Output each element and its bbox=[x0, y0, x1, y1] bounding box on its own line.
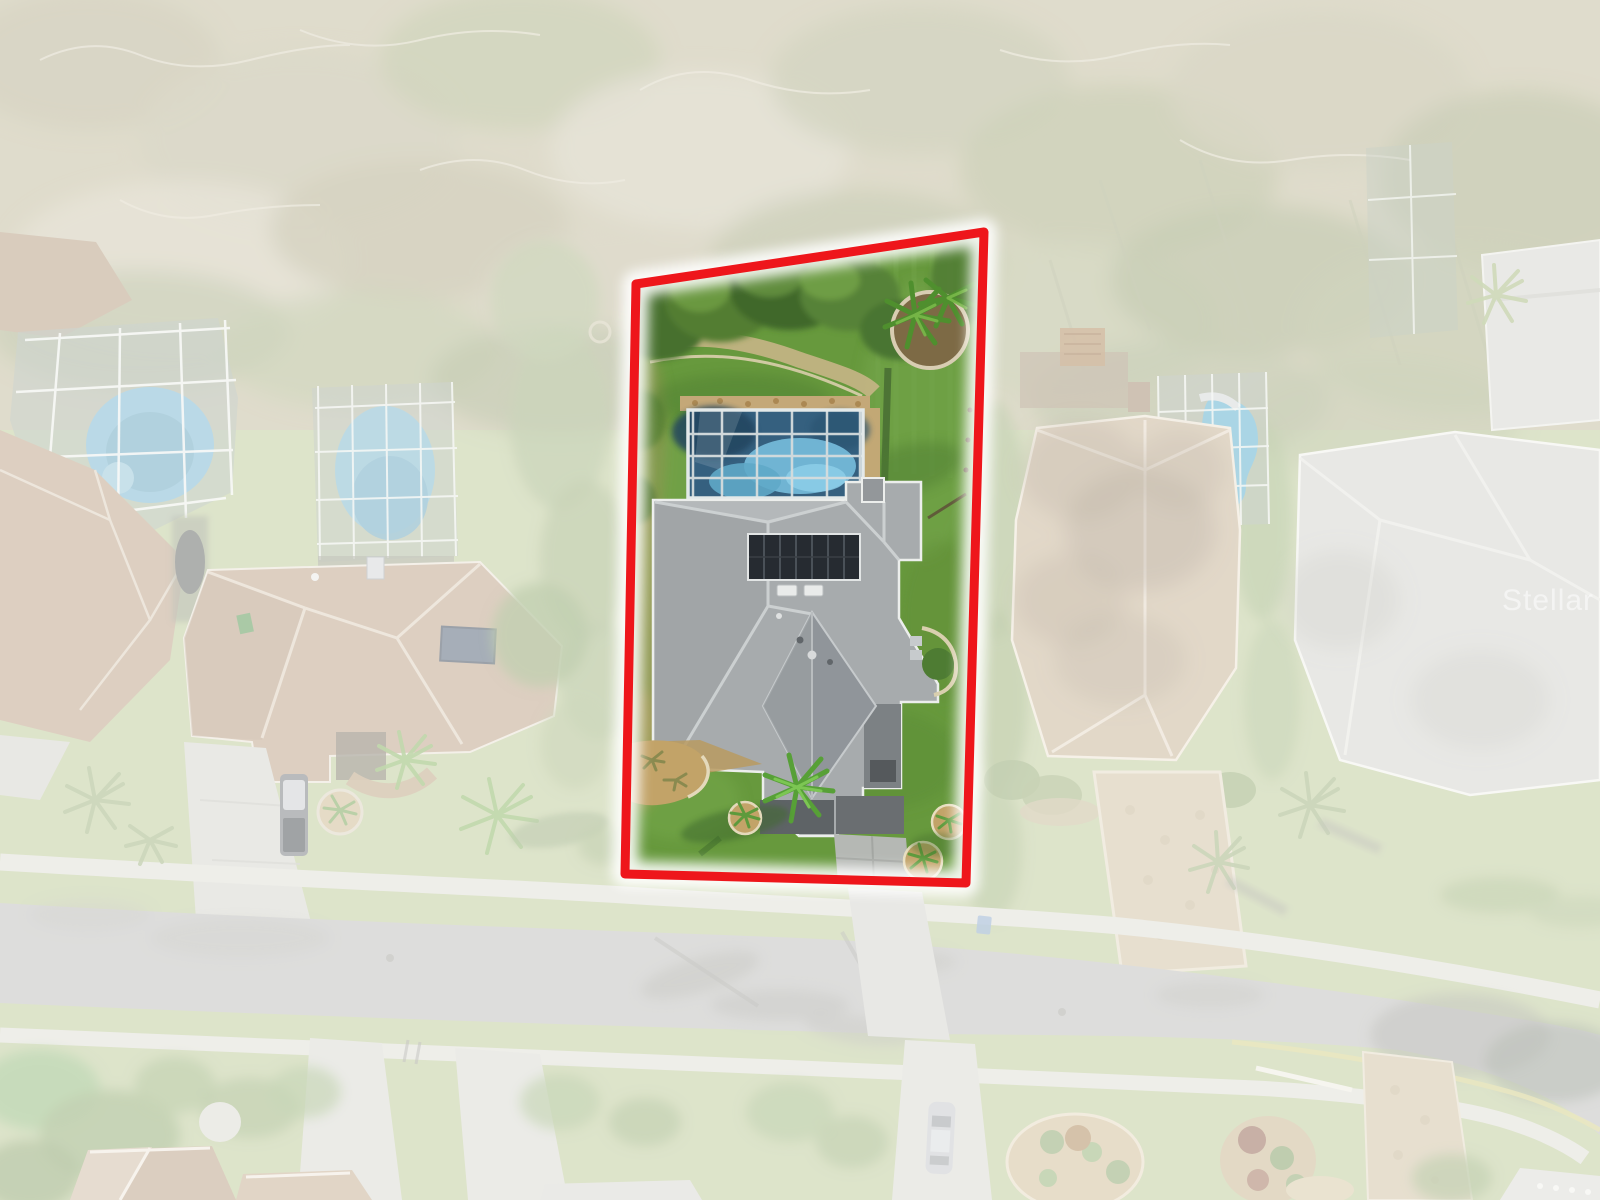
highlighted-lot-content bbox=[605, 220, 999, 895]
chimney bbox=[862, 478, 884, 502]
driveway-upper bbox=[836, 796, 904, 834]
skylight-2 bbox=[804, 585, 823, 596]
mls-watermark: Stellar MLS bbox=[1502, 584, 1600, 617]
aerial-listing-photo: Stellar MLS bbox=[0, 0, 1600, 1200]
skylight-1 bbox=[777, 585, 797, 596]
front-door-shadow bbox=[870, 760, 896, 782]
bush-by-wall bbox=[922, 648, 954, 680]
